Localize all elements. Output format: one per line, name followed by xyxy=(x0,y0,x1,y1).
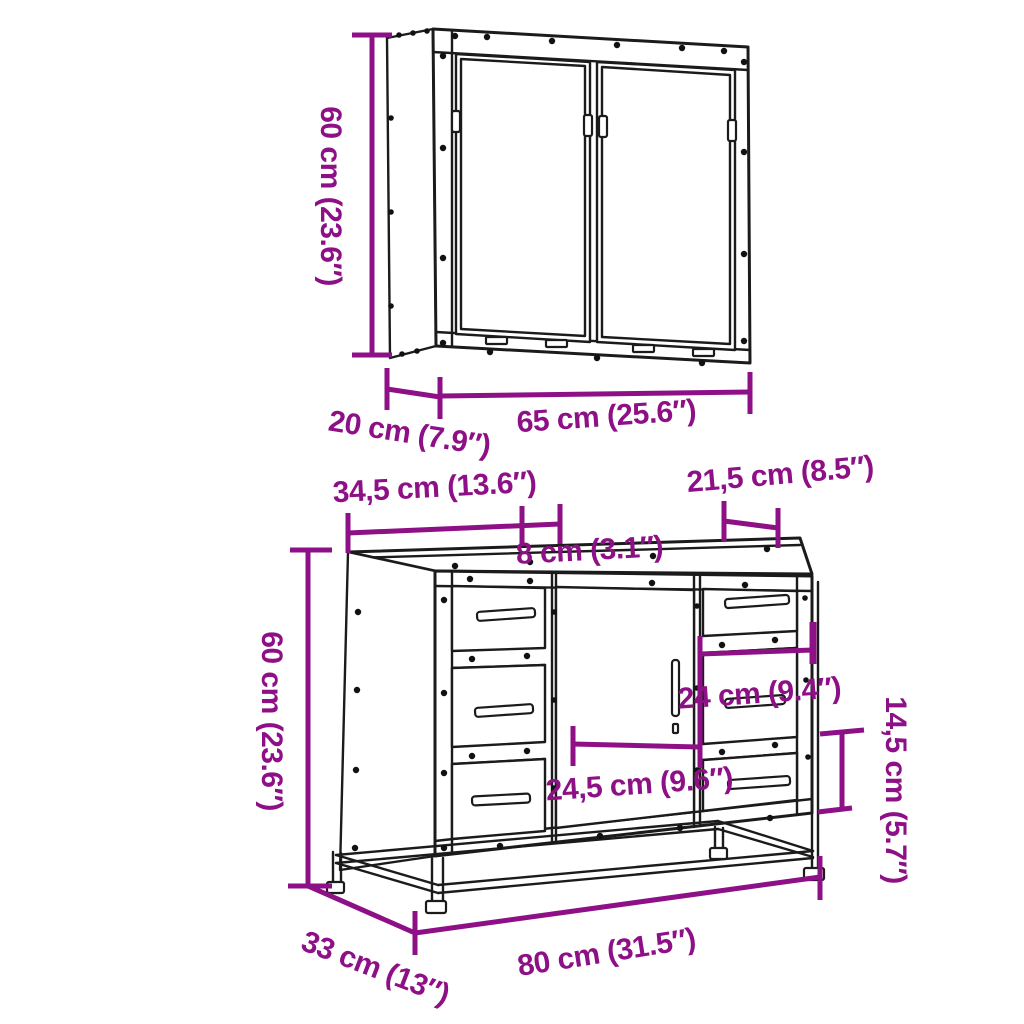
wall-cabinet-side-panel xyxy=(387,29,436,358)
wall-mirror-cabinet xyxy=(387,28,750,366)
dim-label-wall-height: 60 cm (23.6″) xyxy=(314,106,347,286)
dim-label-drawer-height: 14,5 cm (5.7″) xyxy=(879,696,912,883)
door-handle-notch xyxy=(673,724,678,733)
vanity-side-panel xyxy=(340,552,435,870)
vanity-left-drawers xyxy=(452,586,545,839)
foot xyxy=(710,848,727,859)
wall-cabinet-mirror-door-right xyxy=(597,62,735,350)
dim-label-vanity-height: 60 cm (23.6″) xyxy=(255,631,288,811)
wall-cabinet-mirror-door-left xyxy=(456,54,590,342)
drawer-handle xyxy=(472,793,530,805)
foot xyxy=(426,901,446,913)
furniture-dimension-diagram: 60 cm (23.6″) 20 cm (7.9″) 65 cm (25.6″) xyxy=(0,0,1024,1024)
